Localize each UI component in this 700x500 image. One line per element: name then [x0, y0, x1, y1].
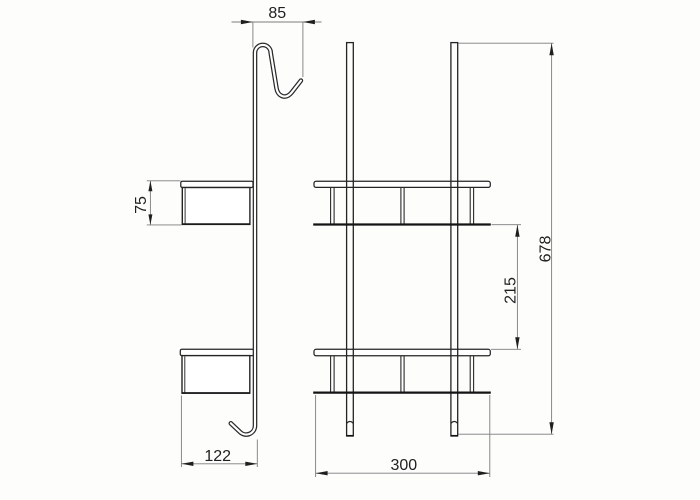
svg-text:122: 122 [204, 448, 231, 465]
svg-text:85: 85 [268, 5, 286, 22]
svg-text:678: 678 [537, 236, 554, 263]
svg-text:215: 215 [503, 277, 520, 304]
svg-text:75: 75 [133, 196, 150, 214]
svg-text:300: 300 [390, 457, 417, 474]
